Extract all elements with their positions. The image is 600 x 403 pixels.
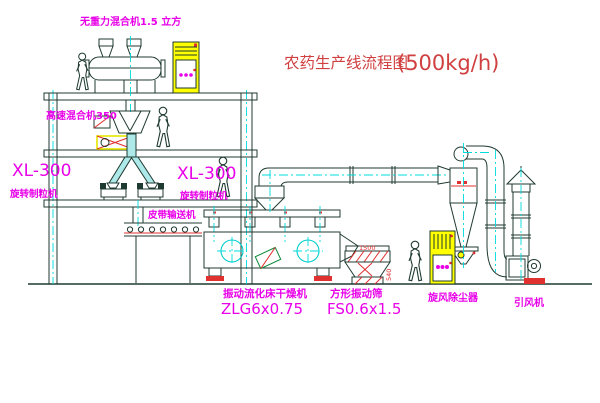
worker-floor2 (157, 107, 170, 146)
worker-roof (77, 53, 89, 90)
label-xl300-mid: XL-300 (177, 164, 236, 184)
control-cabinet-roof (173, 42, 199, 93)
granulator-right (134, 183, 168, 200)
label-high-speed-mixer: 高速混合机350 (46, 109, 117, 122)
label-granulator-left: 旋转制粒机 (9, 188, 58, 200)
label-screen-name: 方形振动筛 (330, 287, 383, 300)
exhaust-duct (255, 166, 450, 212)
title-text: 农药生产线流程图 (284, 54, 408, 72)
label-screen-model: FS0.6x1.5 (327, 300, 401, 318)
process-flow-diagram: 无重力混合机1.5 立方 农药生产线流程图 (500kg/h) 高速混合机350… (0, 0, 600, 403)
label-fan: 引风机 (514, 296, 544, 309)
worker-ground (409, 241, 422, 280)
granulator-left (97, 183, 131, 200)
fluid-bed-dryer (204, 206, 358, 281)
label-dryer-model: ZLG6x0.75 (221, 300, 303, 318)
induced-draft-fan (506, 166, 545, 284)
belt-conveyor (124, 223, 202, 283)
cad-canvas: 无重力混合机1.5 立方 农药生产线流程图 (500kg/h) 高速混合机350… (0, 0, 600, 403)
drop-duct (133, 200, 143, 226)
label-belt-conveyor: 皮带输送机 (147, 209, 196, 221)
control-cabinet-ground (430, 231, 455, 284)
dim-screen-side: 540 (385, 269, 393, 281)
page-title: 农药生产线流程图 (500kg/h) (284, 51, 499, 75)
y-chute (109, 134, 155, 183)
label-cyclone: 旋风除尘器 (427, 291, 479, 304)
label-gravity-mixer: 无重力混合机1.5 立方 (79, 15, 181, 28)
cyclone-outlet-pipe (463, 146, 507, 277)
label-granulator-mid: 旋转制粒机 (179, 190, 228, 202)
title-capacity: (500kg/h) (397, 51, 499, 75)
label-xl300-left: XL-300 (12, 161, 71, 181)
label-dryer-name: 振动流化床干燥机 (223, 287, 307, 300)
zero-gravity-mixer (85, 36, 165, 112)
dim-screen-top: 1500 (359, 244, 376, 252)
